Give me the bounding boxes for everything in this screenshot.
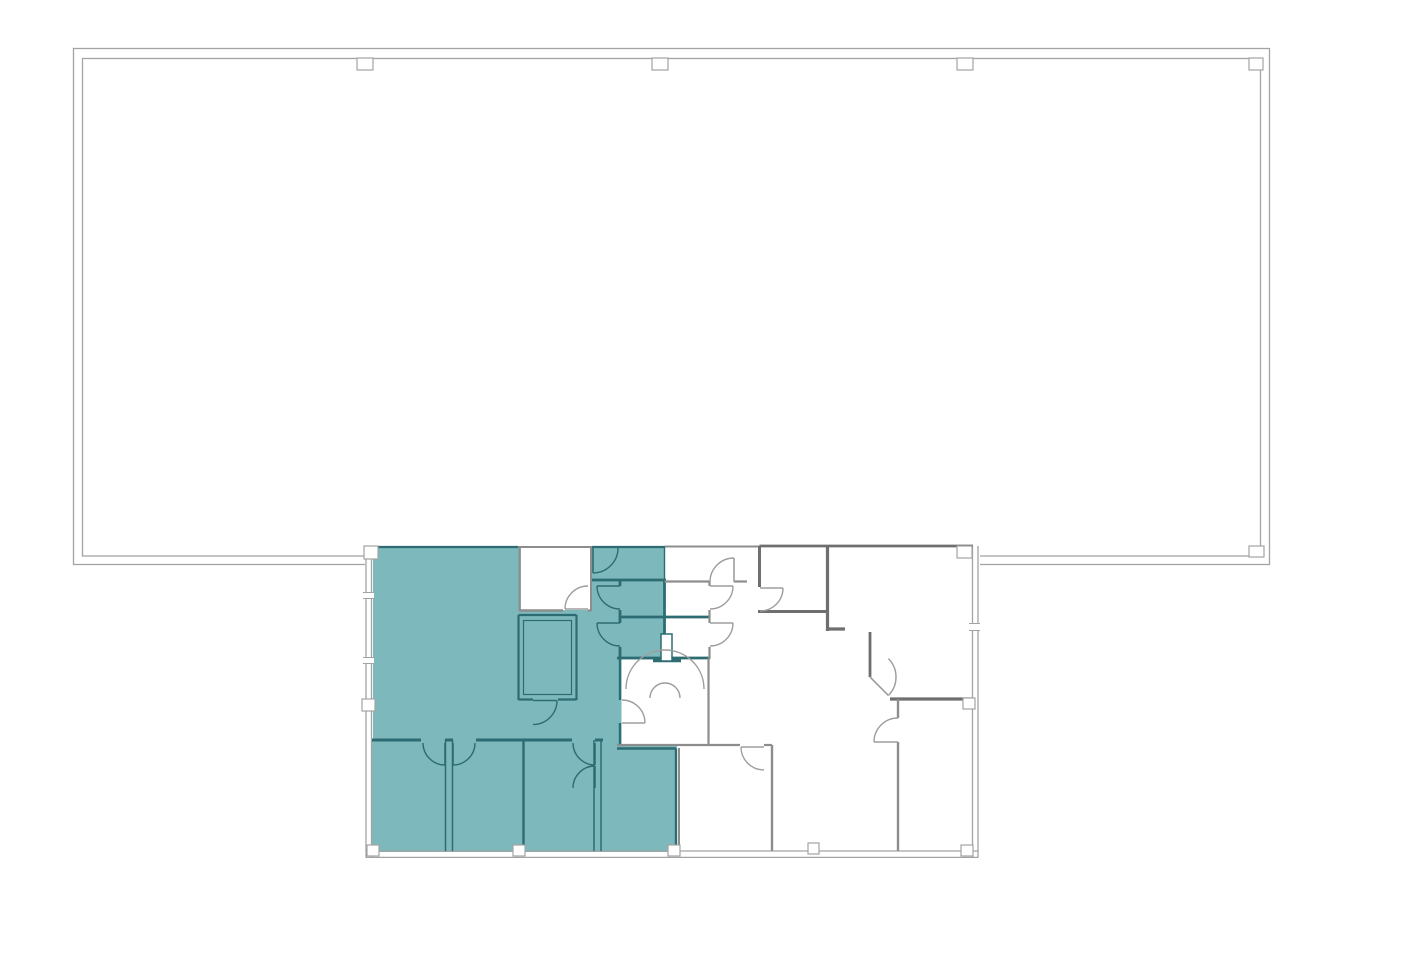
floor-plan-canvas <box>0 0 1423 975</box>
building-outline <box>74 49 1270 565</box>
pillar <box>661 634 672 661</box>
floor-plan-svg <box>0 0 1423 975</box>
